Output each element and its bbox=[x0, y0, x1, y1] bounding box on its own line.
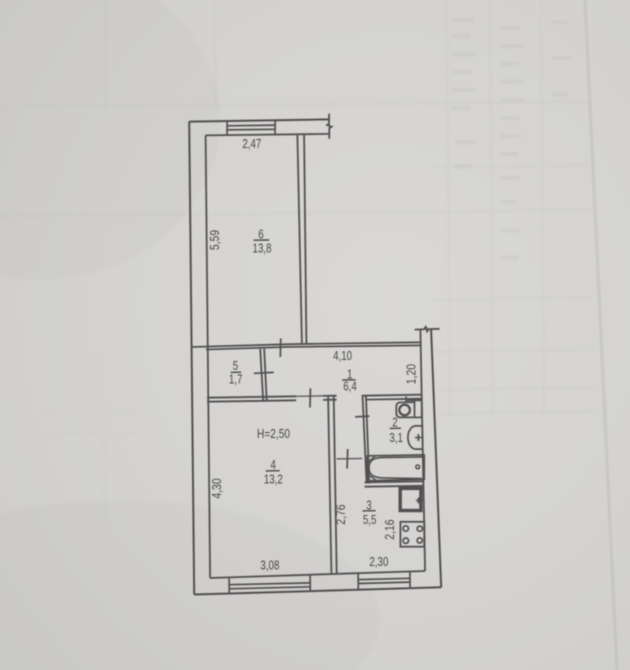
svg-text:6,4: 6,4 bbox=[343, 380, 357, 394]
svg-text:13,8: 13,8 bbox=[253, 242, 272, 256]
svg-text:H=2,50: H=2,50 bbox=[257, 427, 290, 441]
svg-text:5: 5 bbox=[233, 360, 238, 374]
svg-text:1,20: 1,20 bbox=[404, 364, 418, 385]
svg-text:2,47: 2,47 bbox=[242, 138, 261, 152]
svg-text:4,10: 4,10 bbox=[333, 350, 352, 364]
svg-text:4,30: 4,30 bbox=[210, 478, 224, 499]
svg-text:13,2: 13,2 bbox=[264, 473, 283, 487]
svg-text:5,59: 5,59 bbox=[208, 230, 222, 250]
svg-text:2,76: 2,76 bbox=[334, 504, 348, 525]
svg-text:1,7: 1,7 bbox=[229, 374, 243, 388]
svg-text:2,16: 2,16 bbox=[383, 519, 397, 540]
svg-text:3,08: 3,08 bbox=[260, 559, 279, 573]
svg-text:3,1: 3,1 bbox=[389, 432, 403, 446]
svg-text:5,5: 5,5 bbox=[363, 514, 377, 528]
svg-text:2,30: 2,30 bbox=[369, 556, 388, 570]
